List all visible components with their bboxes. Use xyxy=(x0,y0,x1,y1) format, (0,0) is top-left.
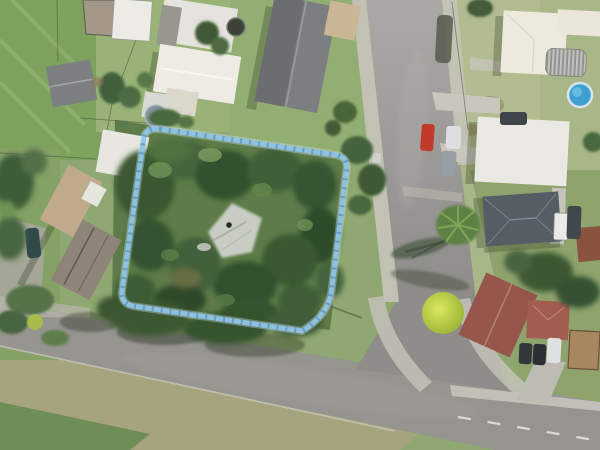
gravel-yard xyxy=(83,0,115,36)
house-roof-white xyxy=(112,0,153,41)
white-car xyxy=(446,126,462,150)
metal-water-tank xyxy=(545,48,586,77)
white-car xyxy=(546,338,561,364)
house-salmon-roof xyxy=(526,300,570,340)
dark-car xyxy=(500,112,527,125)
house-gray-hip-roof xyxy=(482,191,561,246)
shed-tan xyxy=(568,330,600,370)
bright-yellow-tree xyxy=(422,292,464,334)
building-white-roof xyxy=(474,117,569,187)
dark-trailer xyxy=(435,15,453,64)
trampoline xyxy=(227,18,245,36)
pool-highlight xyxy=(572,87,582,97)
garage-tan xyxy=(324,0,361,40)
white-van xyxy=(554,213,569,240)
aerial-imagery xyxy=(0,0,600,450)
pavement-object xyxy=(372,153,382,164)
dark-car xyxy=(518,343,532,365)
red-car xyxy=(420,124,435,152)
gray-car xyxy=(440,151,456,177)
map-viewport[interactable] xyxy=(0,0,600,450)
shed-gray xyxy=(46,59,97,107)
dark-suv xyxy=(566,206,581,239)
dark-car xyxy=(532,344,546,366)
